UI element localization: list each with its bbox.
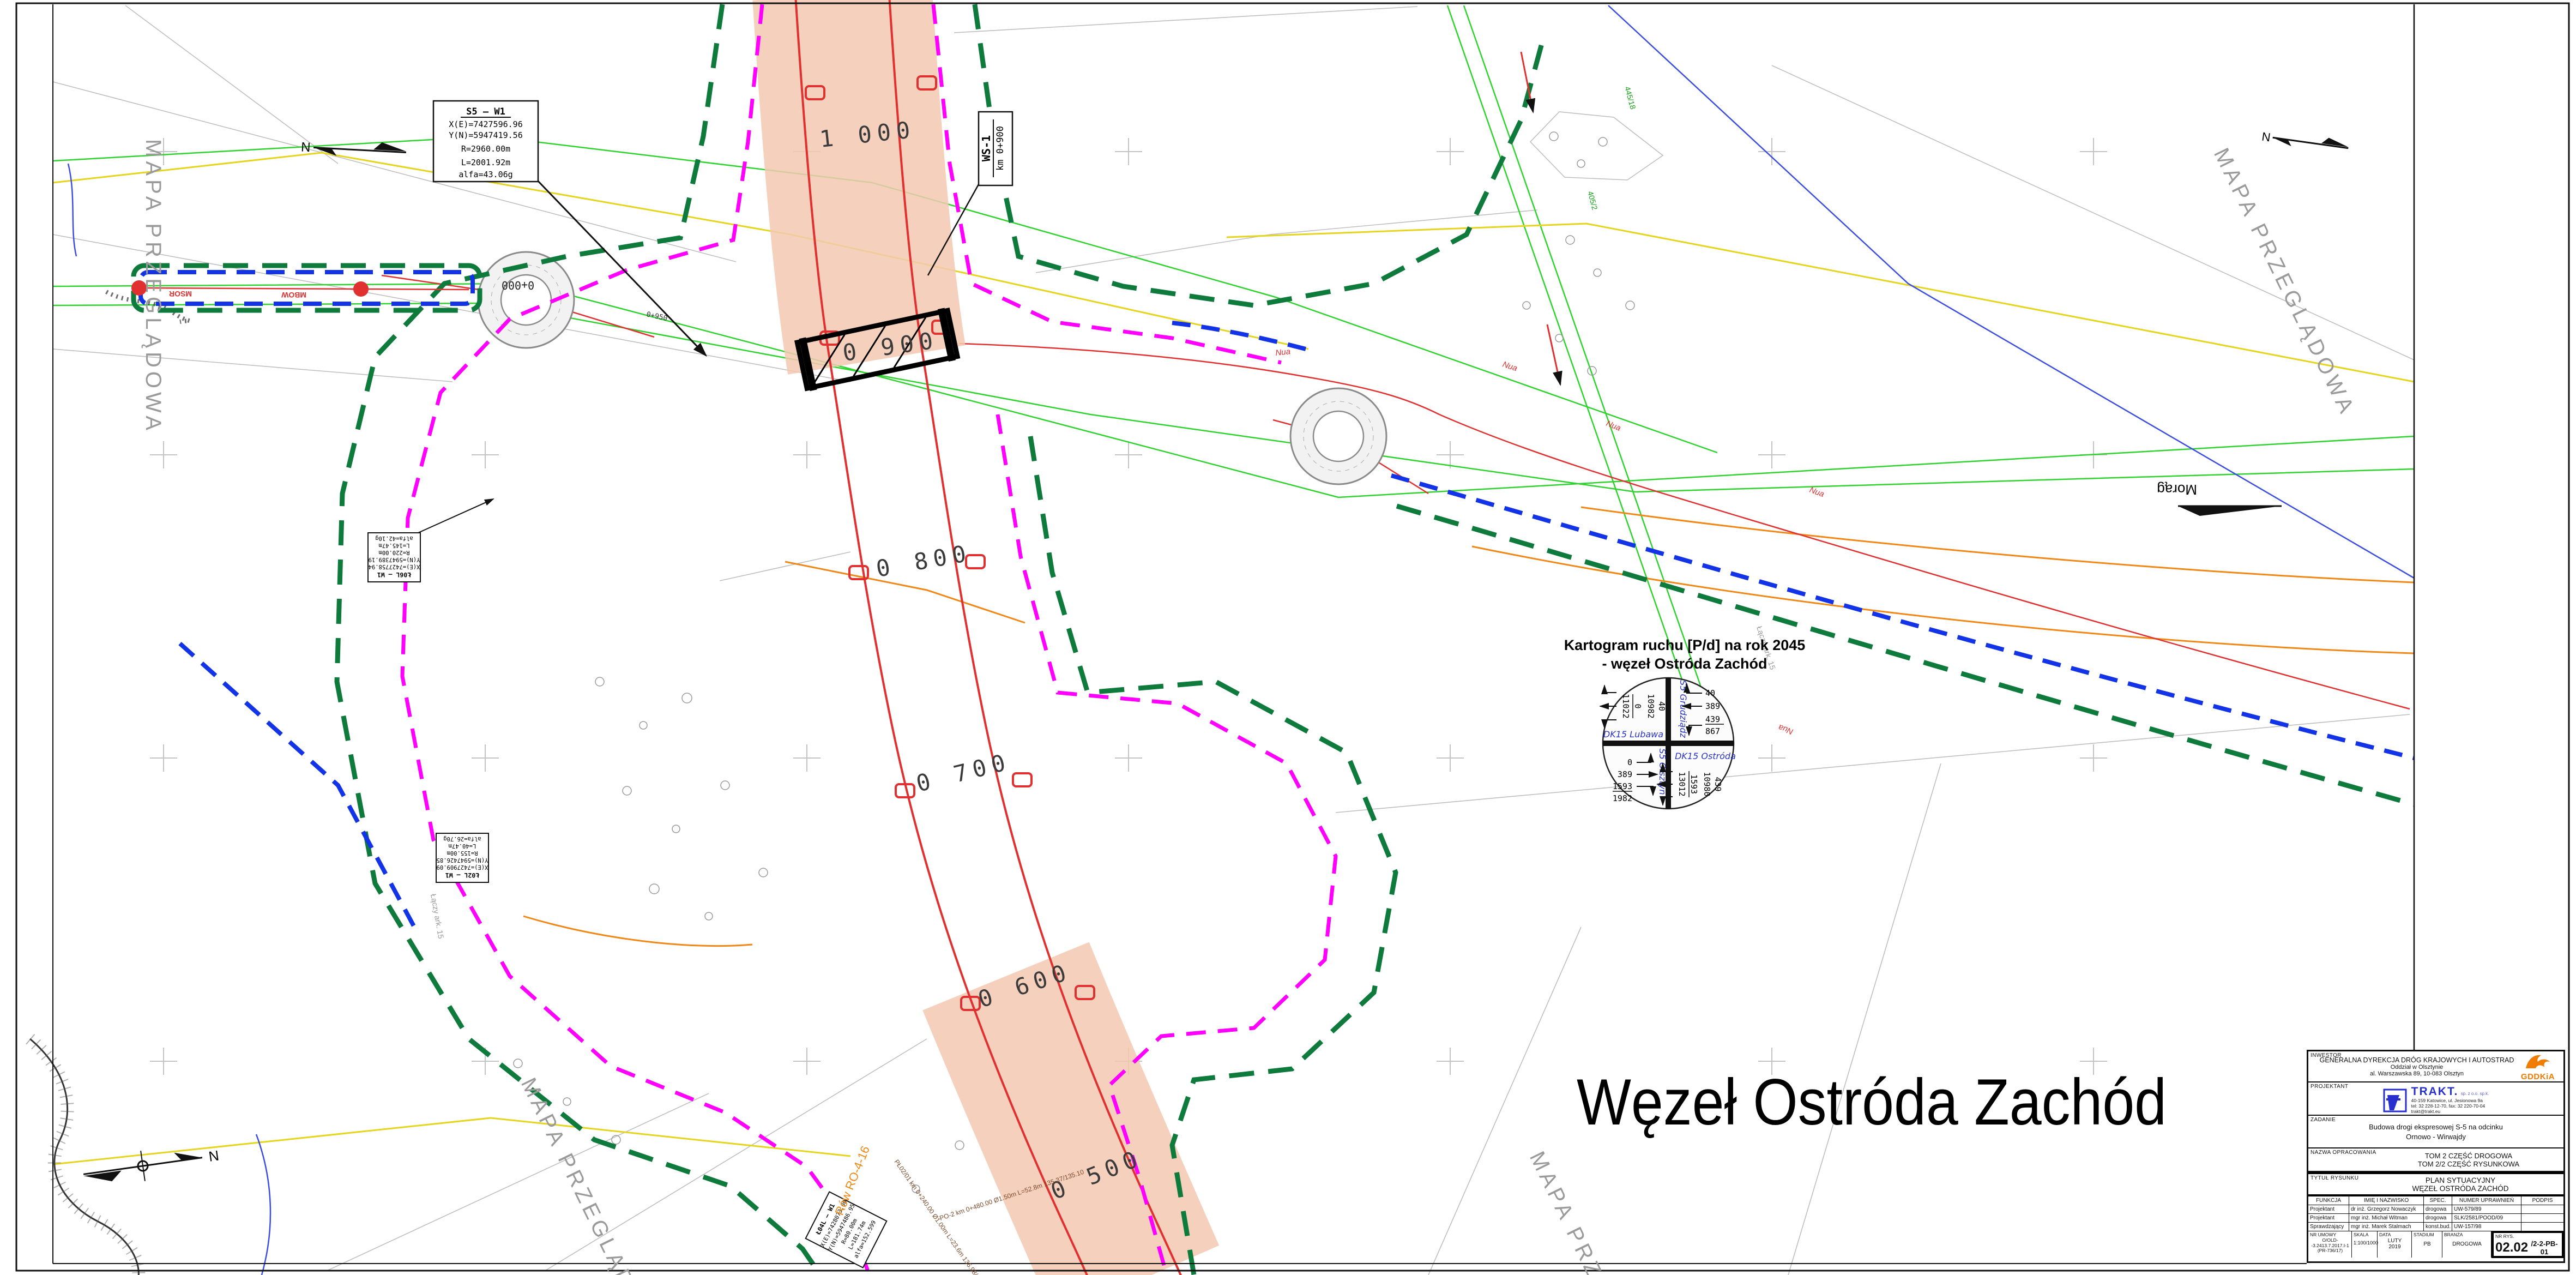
svg-text:alfa=43.06g: alfa=43.06g [459, 170, 512, 179]
svg-text:1982: 1982 [1613, 793, 1632, 803]
table-row-cell: SLK/2581/POOD/09 [2452, 1214, 2521, 1223]
date-line2: 2019 [2379, 1244, 2410, 1250]
title-block-study-name: NAZWA OPRACOWANIA TOM 2 CZĘŚĆ DROGOWA TO… [2308, 1148, 2563, 1172]
contract-number-line3: (PR-736/17) [2310, 1248, 2350, 1254]
svg-text:L=2001.92m: L=2001.92m [461, 158, 510, 167]
svg-text:10982: 10982 [1646, 694, 1656, 718]
task-line2: Ornowo - Wirwajdy [2406, 1133, 2466, 1141]
svg-text:S5 – W1: S5 – W1 [466, 106, 505, 117]
stage-value: PB [2414, 1241, 2441, 1247]
trakt-phone: tel: 32 228-12-70, fax: 32 220-70-04 [2411, 1103, 2489, 1109]
svg-text:R=2960.00m: R=2960.00m [461, 144, 510, 154]
drawing-title-label: TYTUŁ RYSUNKU [2310, 1175, 2358, 1181]
drawing-number-label: NR RYS. [2495, 1234, 2514, 1239]
svg-text:MBOW: MBOW [281, 291, 306, 299]
table-row-cell [2521, 1205, 2563, 1214]
page-title: Węzeł Ostróda Zachód [1577, 1066, 2167, 1139]
svg-text:X(E)=7427596.96: X(E)=7427596.96 [449, 119, 522, 129]
svg-text:10980: 10980 [1702, 772, 1712, 796]
study-name-line2: TOM 2/2 CZĘŚĆ RYSUNKOWA [2418, 1160, 2519, 1168]
svg-text:R=220.00m: R=220.00m [379, 549, 410, 556]
table-row-cell: konst.bud. [2424, 1223, 2452, 1231]
svg-text:DK15 Lubawa: DK15 Lubawa [1603, 729, 1663, 739]
roundabout-right [1290, 388, 1386, 484]
svg-text:389: 389 [1618, 769, 1632, 779]
title-block-drawing-title: TYTUŁ RYSUNKU PLAN SYTUACYJNY WĘZEŁ OSTR… [2308, 1172, 2563, 1196]
table-row-cell: UW-579/89 [2452, 1205, 2521, 1214]
scale-value: 1:100/1000 [2354, 1240, 2376, 1246]
svg-text:X(E)=7427758.94: X(E)=7427758.94 [369, 563, 420, 570]
table-row-cell: mgr inż. Michał Witman [2349, 1214, 2424, 1223]
svg-text:Morąg: Morąg [2157, 482, 2197, 498]
date-label: DATA [2379, 1232, 2391, 1237]
svg-text:1593: 1593 [1689, 774, 1699, 794]
scale-cell: SKALA 1:100/1000 [2352, 1231, 2378, 1258]
svg-text:N: N [300, 140, 311, 155]
investor-name: GENERALNA DYREKCJA DRÓG KRAJOWYCH I AUTO… [2320, 1056, 2514, 1064]
site-plan-canvas: S5 – W1 X(E)=7427596.96 Y(N)=5947419.56 … [0, 0, 2576, 1275]
svg-text:alfa=26.70g: alfa=26.70g [443, 835, 481, 842]
investor-branch: Oddział w Olsztynie [2391, 1064, 2444, 1070]
svg-text:km 0+900: km 0+900 [995, 126, 1006, 171]
svg-text:Ł06L – W1: Ł06L – W1 [377, 571, 412, 579]
table-row-cell: mgr inż. Marek Stalmach [2349, 1223, 2424, 1231]
table-row-cell: dr inż. Grzegorz Nowaczyk [2349, 1205, 2424, 1214]
contract-number-label: NR UMOWY [2310, 1232, 2336, 1237]
branch-label: BRANŻA [2444, 1232, 2463, 1237]
drawing-number-main: 02.02 [2495, 1240, 2528, 1255]
svg-text:40: 40 [1705, 688, 1715, 698]
stage-cell: STADIUM PB [2412, 1231, 2442, 1258]
svg-text:X(E)=7427909.09: X(E)=7427909.09 [437, 864, 488, 870]
table-row-cell [2521, 1223, 2563, 1231]
label-box-l02l: Ł02L – W1 X(E)=7427909.09 Y(N)=5947426.8… [436, 833, 488, 882]
svg-text:R=155.00m: R=155.00m [447, 850, 478, 856]
table-row-cell: drogowa [2424, 1205, 2452, 1214]
scale-label: SKALA [2354, 1232, 2368, 1237]
stage-label: STADIUM [2414, 1232, 2434, 1237]
personnel-table: FUNKCJA IMIĘ I NAZWISKO SPEC. NUMER UPRA… [2308, 1196, 2563, 1231]
svg-text:MSOR: MSOR [169, 290, 192, 298]
title-block-investor: INWESTOR GENERALNA DYREKCJA DRÓG KRAJOWY… [2308, 1051, 2563, 1082]
task-label: ZADANIE [2310, 1117, 2336, 1123]
table-row-cell: UW-157/98 [2452, 1223, 2521, 1231]
svg-text:0: 0 [1627, 757, 1632, 767]
svg-text:Ł02L – W1: Ł02L – W1 [445, 871, 480, 879]
table-row-cell: Sprawdzający [2308, 1223, 2349, 1231]
svg-text:439: 439 [1705, 714, 1720, 724]
trakt-logo-icon [2383, 1088, 2407, 1112]
drawing-number-cell: NR RYS. 02.02 /2-2-PB-01 [2491, 1231, 2564, 1258]
drawing-title-line1: PLAN SYTUACYJNY [2426, 1176, 2495, 1184]
svg-text:L=145.47m: L=145.47m [379, 542, 410, 549]
task-line1: Budowa drogi ekspresowej S-5 na odcinku [2369, 1123, 2503, 1131]
branch-value: DROGOWA [2444, 1241, 2490, 1247]
roundabout-chainage: 0+000 [502, 279, 534, 292]
col-funkcja: FUNKCJA [2308, 1196, 2349, 1205]
svg-text:13012: 13012 [1677, 772, 1687, 796]
title-block-designer: PROJEKTANT TRAKT. sp. z o.o. sp.k. 40-15… [2308, 1082, 2563, 1116]
svg-text:Y(N)=5947419.56: Y(N)=5947419.56 [449, 130, 522, 140]
investor-label: INWESTOR [2310, 1053, 2342, 1059]
branch-cell: BRANŻA DROGOWA [2442, 1231, 2491, 1258]
table-row-cell: Projektant [2308, 1205, 2349, 1214]
drawing-sheet: S5 – W1 X(E)=7427596.96 Y(N)=5947419.56 … [0, 0, 2576, 1275]
svg-text:439: 439 [1713, 777, 1723, 791]
svg-text:867: 867 [1705, 726, 1720, 736]
gddkia-logo: GDDKiA [2514, 1053, 2561, 1081]
investor-address: al. Warszawska 89, 10-083 Olsztyn [2370, 1070, 2464, 1077]
drawing-title-line2: WĘZEŁ OSTRÓDA ZACHÓD [2412, 1184, 2508, 1193]
svg-text:0: 0 [1633, 703, 1643, 708]
trakt-wordmark: TRAKT. [2411, 1085, 2459, 1098]
study-name-line1: TOM 2 CZĘŚĆ DROGOWA [2425, 1152, 2512, 1160]
svg-text:WS-1: WS-1 [980, 135, 993, 161]
col-numer: NUMER UPRAWNIEŃ [2452, 1196, 2521, 1205]
title-block: INWESTOR GENERALNA DYREKCJA DRÓG KRAJOWY… [2307, 1050, 2565, 1263]
study-name-label: NAZWA OPRACOWANIA [2310, 1150, 2376, 1156]
table-row-cell: drogowa [2424, 1214, 2452, 1223]
contract-number-cell: NR UMOWY O/OLD- -3.2413.7.2017.I-1 (PR-7… [2308, 1231, 2352, 1258]
gddkia-eagle-icon [2523, 1053, 2553, 1069]
svg-text:1593: 1593 [1613, 781, 1632, 791]
svg-text:L=40.47m: L=40.47m [449, 843, 476, 849]
title-block-bottom-row: NR UMOWY O/OLD- -3.2413.7.2017.I-1 (PR-7… [2308, 1231, 2563, 1255]
svg-text:- węzeł Ostróda Zachód: - węzeł Ostróda Zachód [1602, 655, 1767, 672]
svg-text:11022: 11022 [1621, 694, 1631, 718]
svg-text:alfa=42.10g: alfa=42.10g [375, 535, 413, 542]
svg-text:DK15 Ostróda: DK15 Ostróda [1675, 751, 1736, 761]
trakt-address: 40-159 Katowice, ul. Jesionowa 9a [2411, 1098, 2489, 1103]
col-imie: IMIĘ I NAZWISKO [2349, 1196, 2424, 1205]
svg-text:Kartogram ruchu [P/d] na rok 2: Kartogram ruchu [P/d] na rok 2045 [1564, 637, 1806, 653]
svg-text:389: 389 [1705, 701, 1720, 711]
svg-text:Y(N)=5947389.19: Y(N)=5947389.19 [369, 556, 420, 563]
date-line1: LUTY [2379, 1238, 2410, 1244]
col-podpis: PODPIS [2521, 1196, 2563, 1205]
drawing-number-suffix: /2-2-PB-01 [2528, 1240, 2561, 1256]
table-row-cell [2521, 1214, 2563, 1223]
designer-label: PROJEKTANT [2310, 1084, 2348, 1090]
table-row-cell: Projektant [2308, 1214, 2349, 1223]
trakt-email: trakt@trakt.eu [2411, 1109, 2489, 1114]
trakt-suffix: sp. z o.o. sp.k. [2461, 1091, 2489, 1096]
svg-text:40: 40 [1657, 701, 1667, 711]
svg-text:Y(N)=5947426.85: Y(N)=5947426.85 [437, 857, 488, 863]
gddkia-wordmark: GDDKiA [2514, 1072, 2561, 1081]
title-block-task: ZADANIE Budowa drogi ekspresowej S-5 na … [2308, 1116, 2563, 1148]
svg-text:Nua: Nua [1275, 347, 1291, 358]
svg-text:MAPA PRZEGLĄDOWA: MAPA PRZEGLĄDOWA [141, 139, 165, 434]
col-spec: SPEC. [2424, 1196, 2452, 1205]
date-cell: DATA LUTY 2019 [2378, 1231, 2412, 1258]
